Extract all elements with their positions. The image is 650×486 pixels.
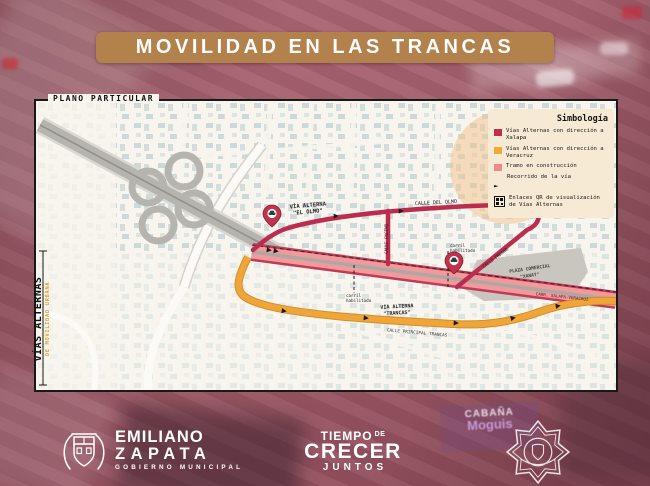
municipality-name: EMILIANO [115, 429, 243, 445]
legend-item: Enlaces QR de visualización de Vías Alte… [494, 195, 608, 210]
legend-item: Tramo en construcción [494, 163, 608, 171]
legend-item: Vías Alternas con dirección a Xalapa [494, 128, 608, 143]
legend-label: Tramo en construcción [506, 163, 577, 170]
slogan-word: DE [375, 431, 386, 438]
street-label: CALLE ENCINO [384, 223, 389, 254]
xalapa-route-swatch [494, 129, 502, 136]
page-title: MOVILIDAD EN LAS TRANCAS [136, 36, 514, 59]
street-label: habilitado [450, 248, 476, 253]
legend-item: Vías Alternas con dirección a Veracruz [494, 146, 608, 161]
infographic-poster: CABAÑA Moguis MOVILIDAD EN LAS TRANCAS [0, 0, 650, 486]
photo-red-car [2, 58, 18, 69]
construction-swatch [494, 164, 502, 171]
slogan-word: JUNTOS [296, 462, 414, 473]
slogan: TIEMPODE CRECER JUNTOS [292, 430, 414, 473]
map-legend: Simbología Vías Alternas con dirección a… [488, 109, 614, 218]
photo-white-car [600, 42, 628, 55]
qr-code-icon [494, 196, 505, 207]
legend-label: Vías Alternas con dirección a Veracruz [506, 146, 608, 161]
legend-item: Recorrido de la vía [494, 174, 608, 192]
legend-title: Simbología [494, 114, 608, 124]
slogan-word: CRECER [292, 442, 414, 462]
route-arrow-icon [494, 173, 503, 192]
photo-white-car [535, 68, 574, 88]
veracruz-route-swatch [494, 147, 502, 154]
photo-red-car [622, 6, 642, 19]
municipality-name: ZAPATA [115, 446, 243, 462]
title-banner: MOVILIDAD EN LAS TRANCAS [96, 32, 554, 63]
map-card: VÍA ALTERNA "EL OLMO" CALLE DEL OLMO CAL… [34, 99, 618, 392]
municipality-subtitle: GOBIERNO MUNICIPAL [115, 464, 243, 471]
municipal-crest-icon [60, 427, 108, 473]
municipal-logo: EMILIANO ZAPATA GOBIERNO MUNICIPAL [60, 427, 243, 473]
footer: EMILIANO ZAPATA GOBIERNO MUNICIPAL TIEMP… [0, 414, 650, 486]
legend-label: Enlaces QR de visualización de Vías Alte… [509, 195, 608, 210]
plan-title: PLANO PARTICULAR [48, 94, 159, 103]
street-label: habilitado [346, 298, 372, 303]
legend-label: Vías Alternas con dirección a Xalapa [506, 128, 608, 143]
legend-label: Recorrido de la vía [507, 174, 571, 181]
police-star-badge-icon [506, 420, 570, 484]
